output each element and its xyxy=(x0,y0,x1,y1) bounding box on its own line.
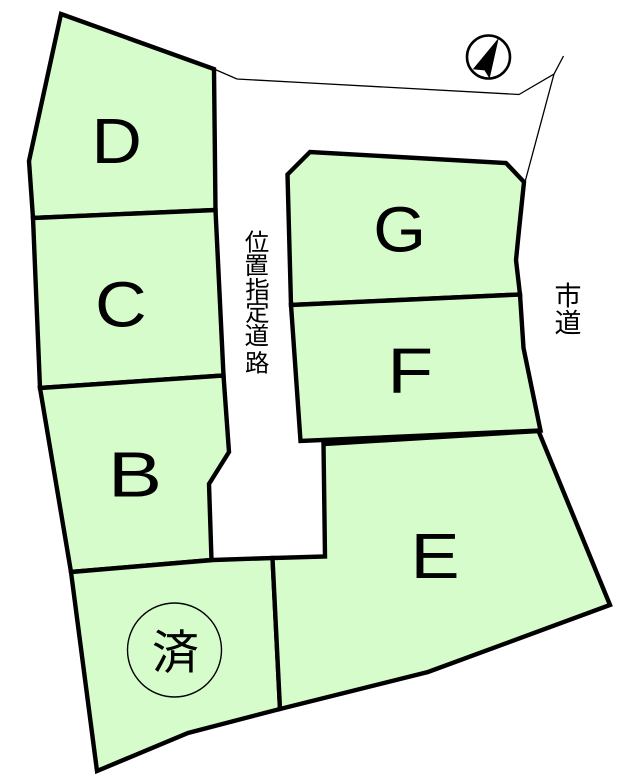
svg-text:D: D xyxy=(92,106,142,178)
svg-text:C: C xyxy=(95,269,147,341)
svg-text:F: F xyxy=(387,335,433,407)
svg-text:B: B xyxy=(108,439,162,511)
svg-text:G: G xyxy=(373,193,426,265)
svg-text:E: E xyxy=(410,521,459,592)
